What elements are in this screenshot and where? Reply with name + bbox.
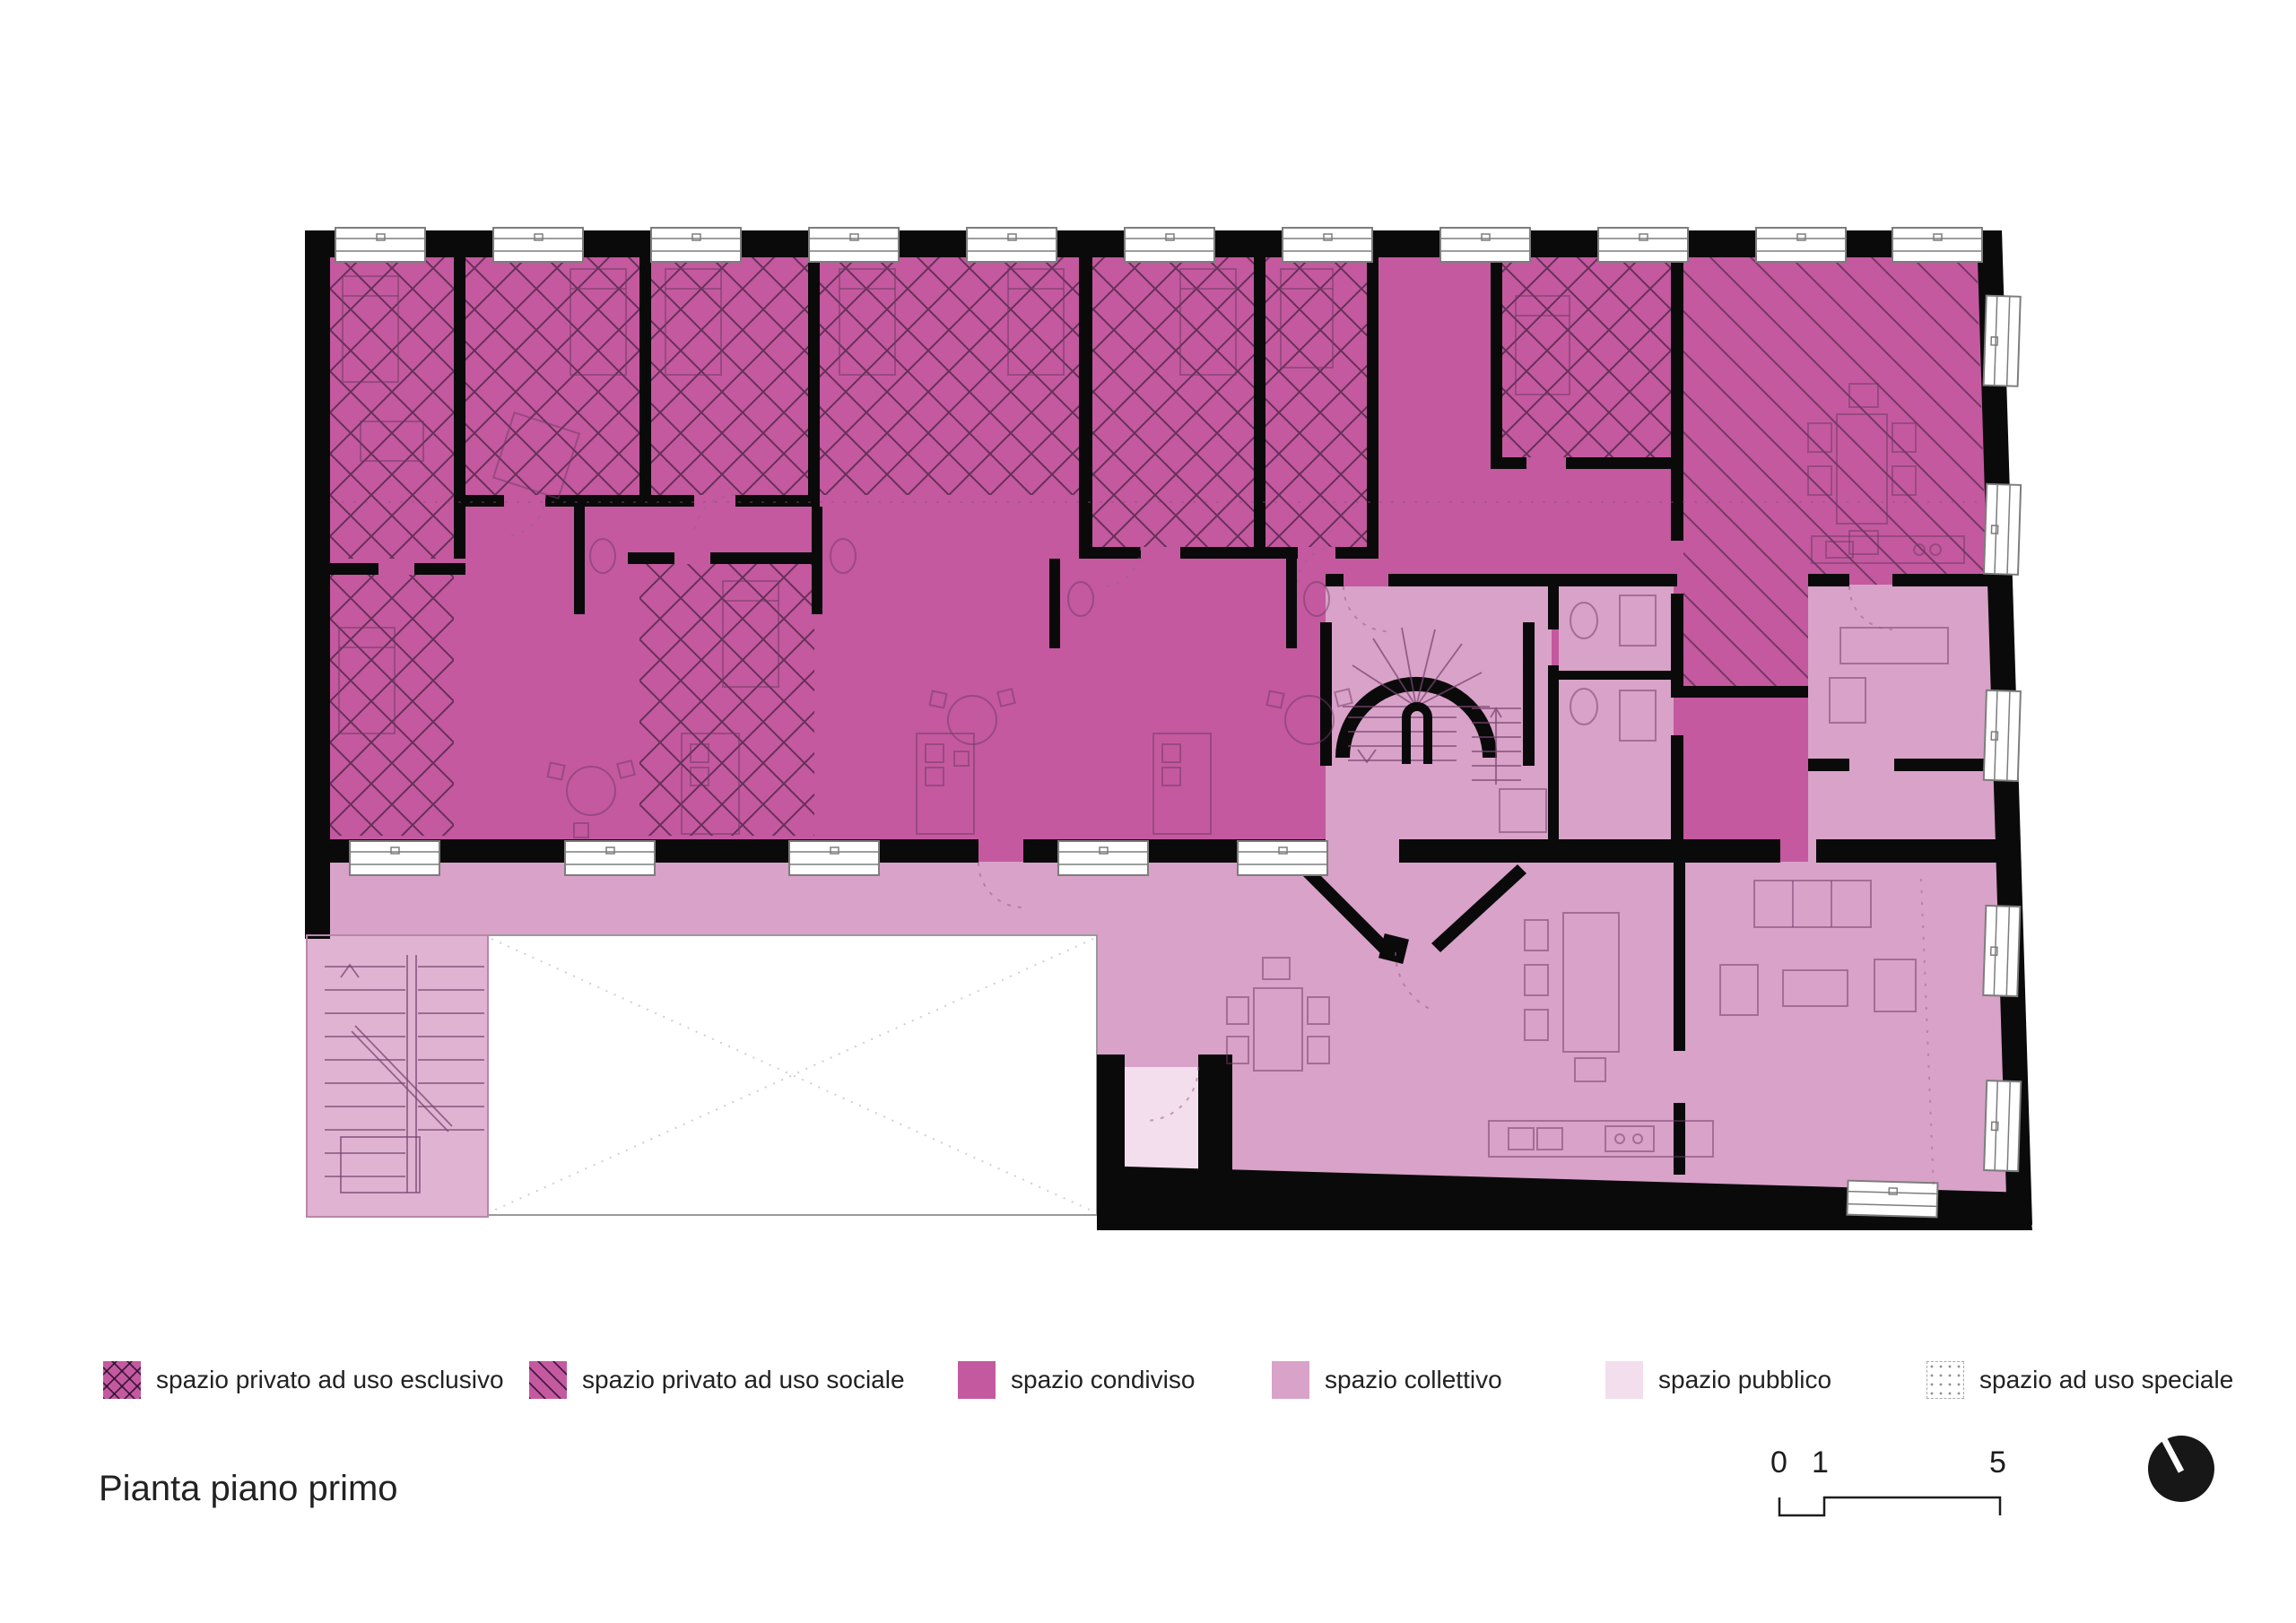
scale-bar: 0 1 5 (1758, 1433, 2054, 1541)
legend-swatch-speciale-icon (1926, 1361, 1964, 1399)
zone-collettivo-stair-hall (1326, 586, 1552, 862)
legend-item-esclusivo: spazio privato ad uso esclusivo (103, 1361, 504, 1399)
legend-item-speciale: spazio ad uso speciale (1926, 1361, 2233, 1399)
legend-swatch-collettivo-icon (1272, 1361, 1309, 1399)
legend-item-sociale: spazio privato ad uso sociale (529, 1361, 905, 1399)
legend-label: spazio privato ad uso esclusivo (156, 1366, 504, 1394)
legend-swatch-esclusivo-icon (103, 1361, 141, 1399)
legend-label: spazio privato ad uso sociale (582, 1366, 905, 1394)
north-indicator-icon (2145, 1433, 2217, 1505)
legend-label: spazio collettivo (1325, 1366, 1502, 1394)
legend-item-pubblico: spazio pubblico (1605, 1361, 1831, 1399)
scale-label-start: 0 (1770, 1445, 1787, 1480)
legend-label: spazio pubblico (1658, 1366, 1831, 1394)
legend-swatch-pubblico-icon (1605, 1361, 1643, 1399)
legend-item-collettivo: spazio collettivo (1272, 1361, 1502, 1399)
zone-collettivo-stair-court (307, 935, 488, 1217)
scale-bar-line (1779, 1497, 2000, 1515)
legend-label: spazio ad uso speciale (1979, 1366, 2233, 1394)
drawing-sheet: spazio privato ad uso esclusivo spazio p… (0, 0, 2296, 1623)
legend-swatch-condiviso-icon (958, 1361, 996, 1399)
scale-label-mid: 1 (1812, 1445, 1829, 1480)
legend-item-condiviso: spazio condiviso (958, 1361, 1195, 1399)
page-title: Pianta piano primo (99, 1469, 398, 1509)
scale-label-end: 5 (1989, 1445, 2006, 1480)
void-opening (488, 935, 1097, 1215)
legend-label: spazio condiviso (1011, 1366, 1195, 1394)
legend-swatch-sociale-icon (529, 1361, 567, 1399)
